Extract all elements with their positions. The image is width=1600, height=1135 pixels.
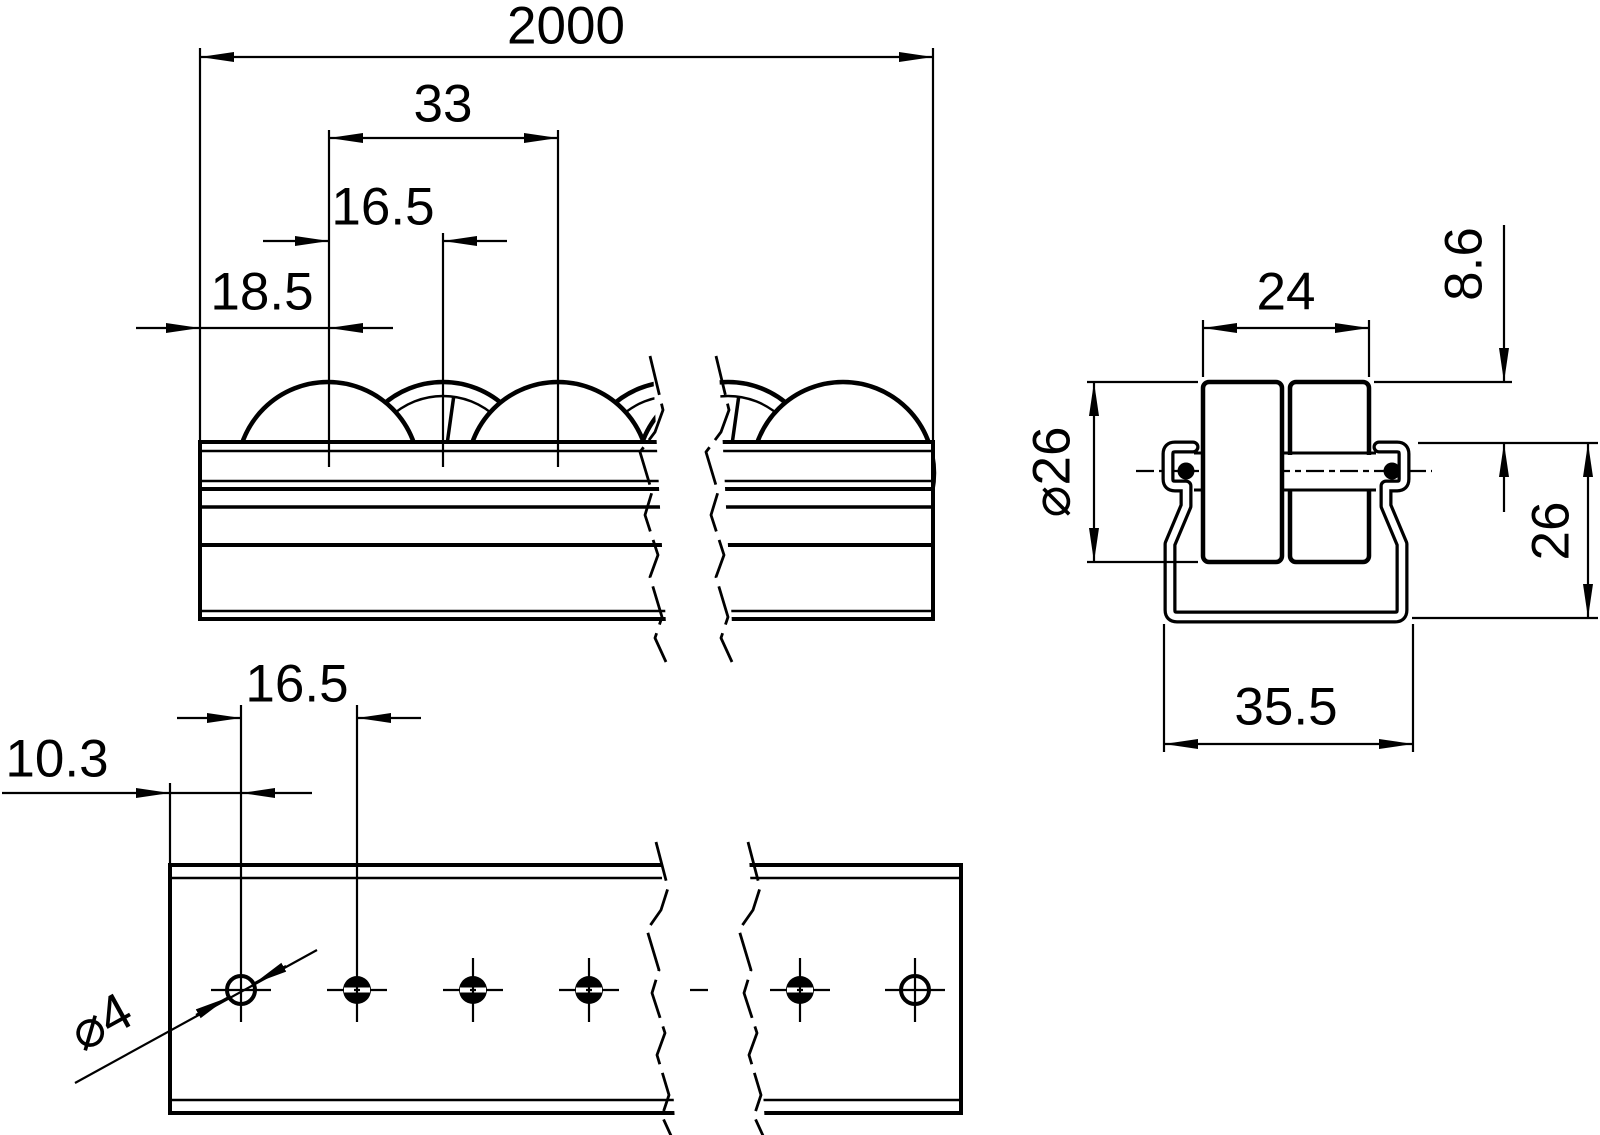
rail-body-fill bbox=[198, 440, 935, 621]
axle-end-right bbox=[1384, 463, 1401, 480]
dimension-label-double-pitch: 33 bbox=[414, 75, 473, 134]
dimension-label-overall-length: 2000 bbox=[507, 0, 625, 56]
drawing-page: 2000 33 16.5 18.5 bbox=[0, 0, 1600, 1135]
dimension-label-roller-width: 24 bbox=[1257, 263, 1316, 322]
dimension-label-rail-height: 26 bbox=[1522, 502, 1581, 561]
dimension-label-roller-diameter: ⌀26 bbox=[1023, 427, 1082, 518]
side-view: 2000 33 16.5 18.5 bbox=[136, 0, 935, 664]
bottom-view: 16.5 10.3 ⌀4 bbox=[2, 655, 961, 1135]
dimension-label-end-offset: 18.5 bbox=[210, 263, 313, 322]
dimension-label-rail-width: 35.5 bbox=[1234, 678, 1337, 737]
dimension-label-hole-offset: 10.3 bbox=[5, 730, 108, 789]
dimension-label-roller-pitch: 16.5 bbox=[331, 178, 434, 237]
dimension-label-hole-diameter: ⌀4 bbox=[60, 981, 142, 1062]
side-view-rail bbox=[198, 440, 935, 621]
technical-drawing-canvas: 2000 33 16.5 18.5 bbox=[0, 0, 1600, 1135]
end-view: 24 ⌀26 8.6 26 35.5 bbox=[1023, 225, 1599, 752]
end-view-front-roller bbox=[1203, 382, 1282, 562]
dimension-label-hole-pitch: 16.5 bbox=[245, 655, 348, 714]
dimension-label-protrusion: 8.6 bbox=[1435, 227, 1494, 301]
axle-end-left bbox=[1178, 463, 1195, 480]
break-gap bbox=[660, 840, 766, 1135]
